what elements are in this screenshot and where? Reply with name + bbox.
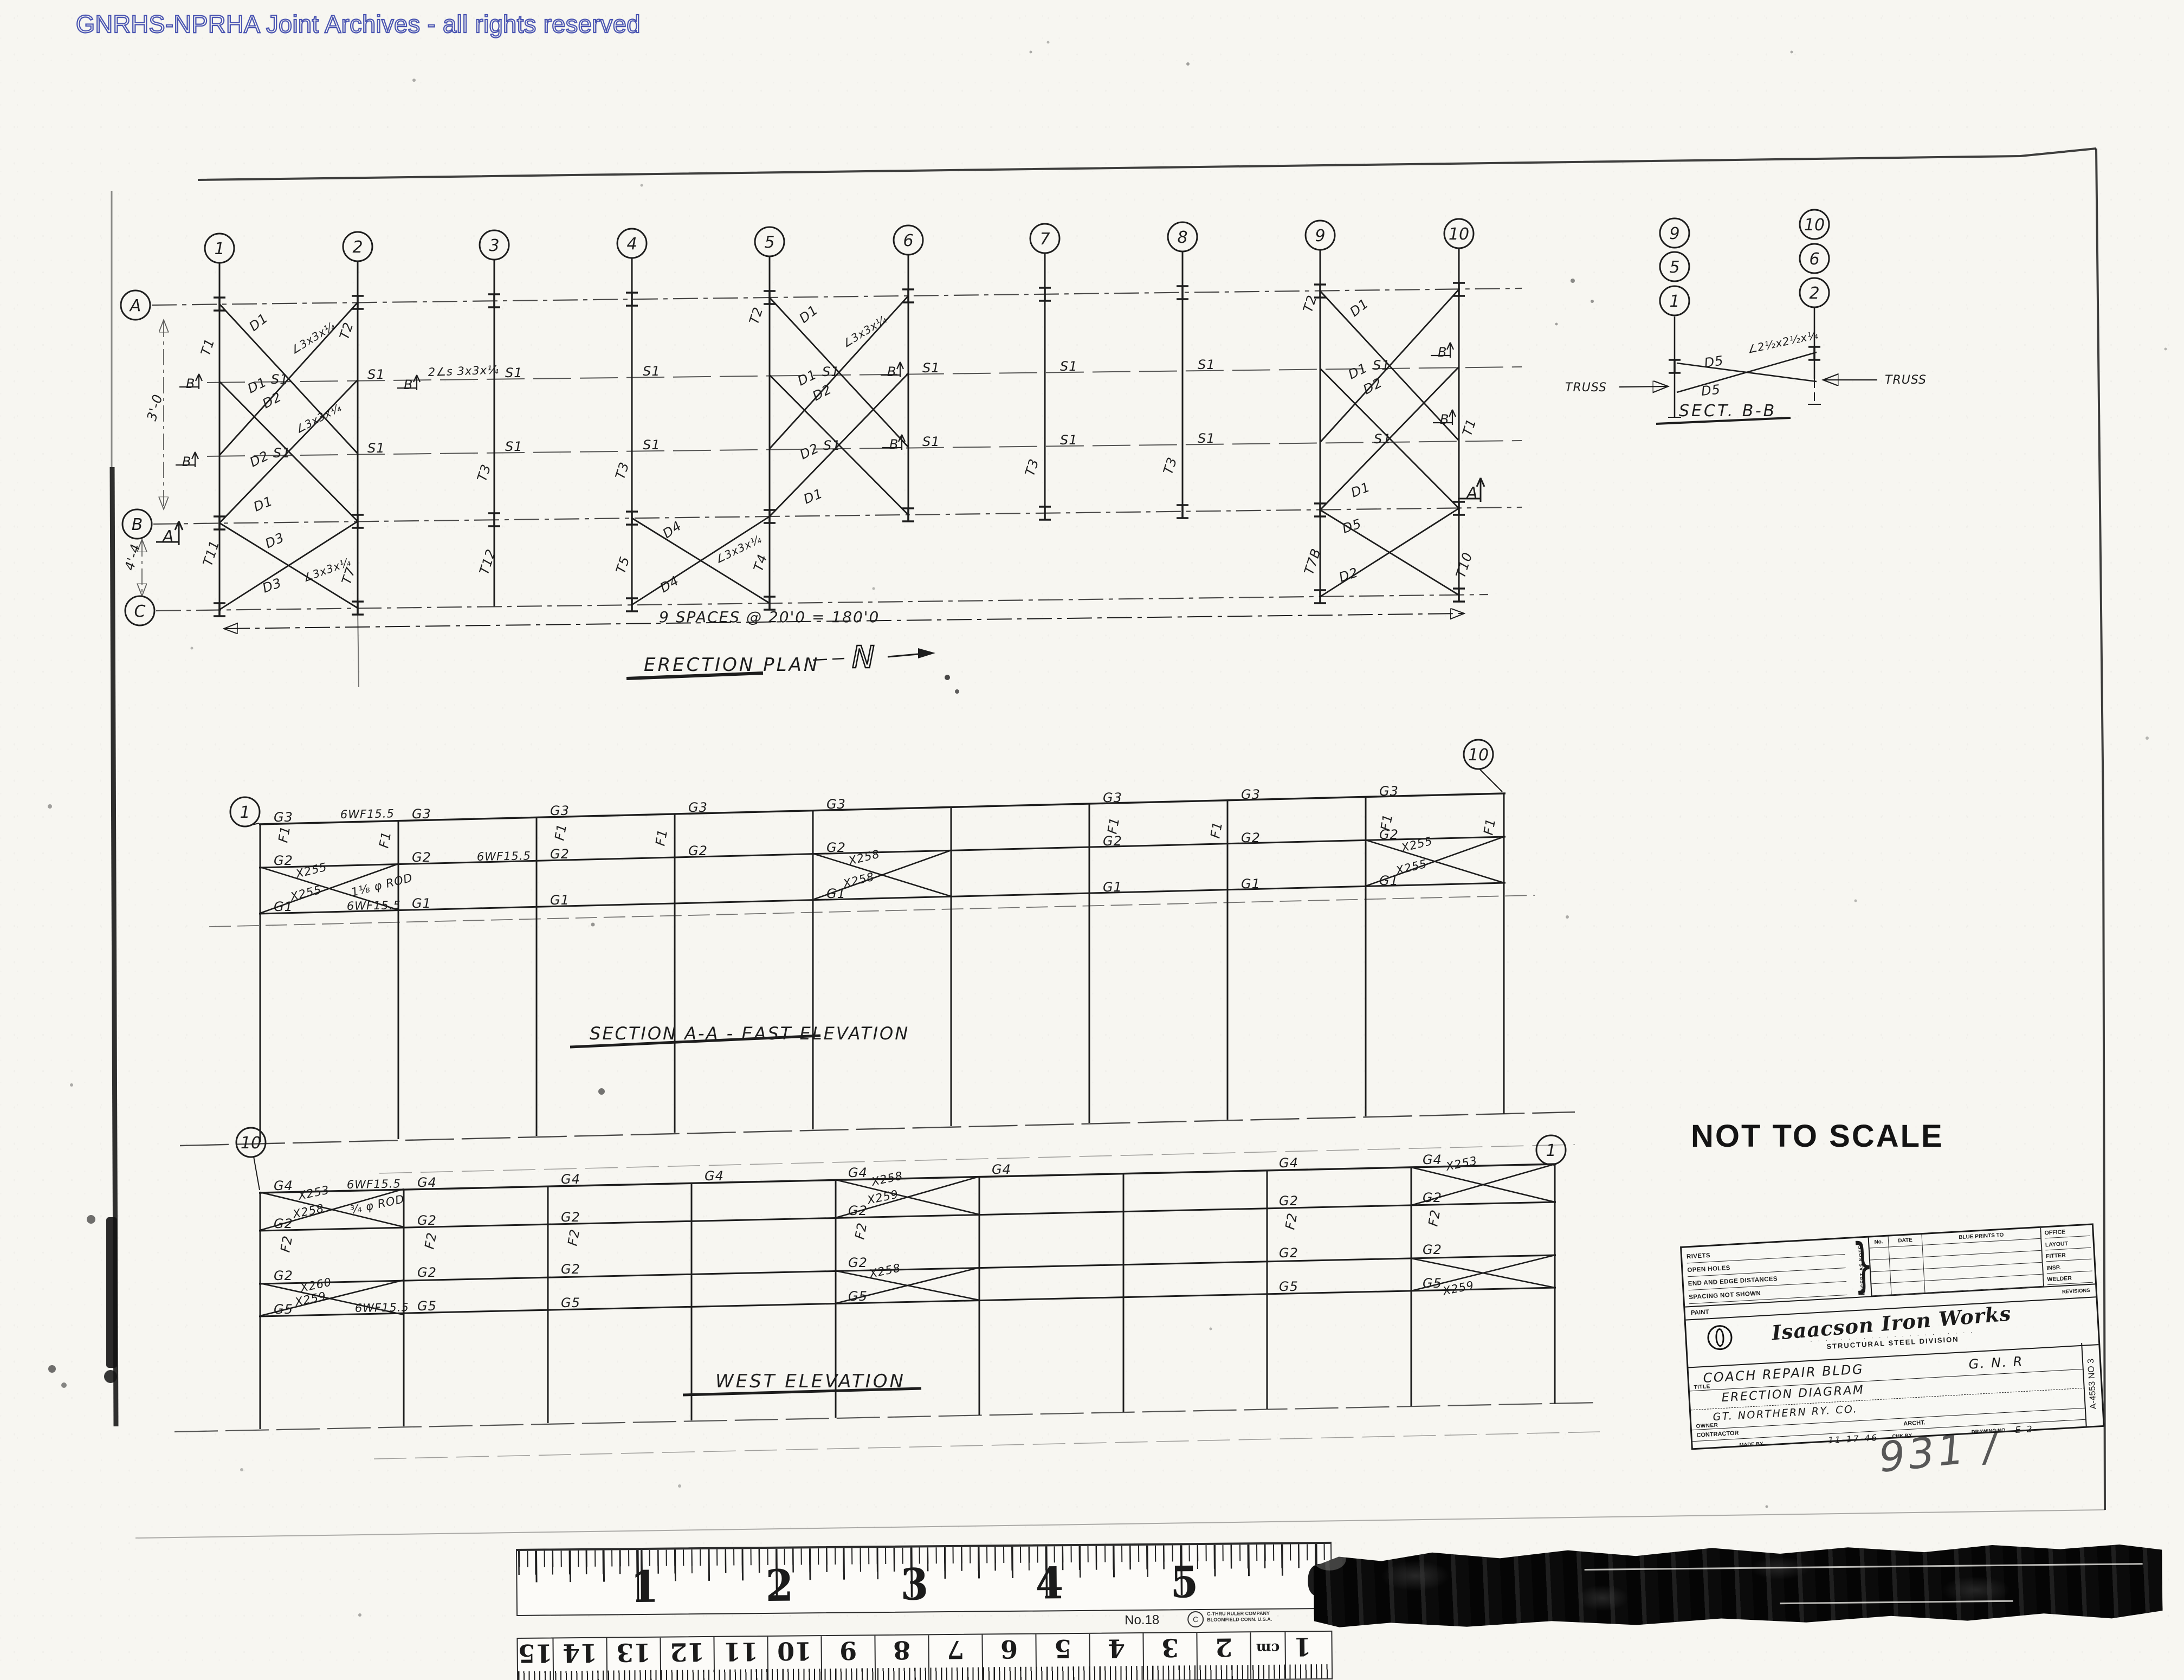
member-label: G2 [412, 850, 431, 865]
member-label: T3 [1160, 455, 1180, 476]
member-label: G4 [1423, 1152, 1442, 1167]
grid-bubble-label: 10 [1449, 225, 1469, 244]
member-label: F1 [1207, 820, 1225, 839]
grid-bubble-label: 2 [1809, 284, 1819, 303]
signoff-welder: WELDER [2047, 1273, 2093, 1285]
member-label: G2 [1423, 1190, 1442, 1205]
ruler-cm-number: 1 [1285, 1632, 1319, 1662]
made-by-label: MADE BY [1739, 1441, 1763, 1448]
ruler-cm-cell: 2 [1197, 1632, 1251, 1679]
col-no-header: No. [1869, 1237, 1889, 1249]
member-label: F2 [1425, 1209, 1443, 1227]
member-label: D5 [1703, 353, 1724, 371]
erection-plan-title: ERECTION PLAN [644, 654, 819, 676]
signoff-column: OFFICE LAYOUT FITTER INSP. WELDER [2040, 1225, 2095, 1287]
member-label: D5 [1701, 382, 1721, 399]
member-label: G5 [274, 1302, 293, 1317]
ruler-cm-number: 7 [929, 1635, 981, 1665]
member-label: S1 [1198, 357, 1216, 372]
member-label: T2 [1300, 293, 1320, 314]
member-label: G2 [848, 1203, 868, 1218]
member-label: T2 [746, 305, 766, 326]
member-label: G2 [1241, 830, 1261, 845]
member-label: X258 [870, 1169, 904, 1188]
member-label: G1 [826, 886, 846, 901]
grid-bubble-label: 1 [1669, 292, 1679, 311]
scanned-drawing-page: GNRHS-NPRHA Joint Archives - all rights … [0, 0, 2184, 1680]
member-label: G4 [274, 1178, 293, 1193]
member-label: B [889, 437, 899, 452]
member-label: F1 [376, 830, 394, 849]
copyright-icon: C [1187, 1611, 1204, 1627]
member-label: G2 [1279, 1245, 1298, 1261]
member-label: 6WF15.5 [355, 1301, 409, 1315]
grid-bubble-label: 10 [241, 1134, 261, 1153]
member-label: T4 [751, 552, 770, 573]
title-label: TITLE [1694, 1384, 1710, 1391]
member-label: G2 [274, 853, 293, 868]
member-label: B [182, 454, 191, 469]
member-label: X258 [847, 847, 881, 868]
member-label: G3 [826, 797, 846, 812]
member-label: G5 [1423, 1276, 1442, 1291]
grid-bubbles: 12345678910ABC1101019511062 [121, 210, 1829, 1165]
grid-bubble-label: 10 [1804, 216, 1825, 235]
member-label: G3 [1379, 784, 1399, 799]
member-label: D1 [1346, 360, 1369, 383]
member-label: S1 [922, 360, 940, 376]
smudge-streak [1585, 1563, 2143, 1571]
member-label: X253 [296, 1183, 331, 1203]
member-label: F2 [852, 1222, 870, 1240]
member-label: A [161, 527, 175, 546]
member-label: G4 [561, 1172, 580, 1187]
ruler-cm-number: 2 [1197, 1632, 1250, 1662]
section-aa-title: SECTION A-A - EAST ELEVATION [590, 1023, 909, 1044]
member-label: S1 [271, 372, 289, 387]
member-label: TRUSS [1885, 373, 1927, 387]
member-label: G2 [1103, 833, 1122, 849]
ruler-cm-cell: 11 [714, 1637, 768, 1680]
sect-bb-lines: SECT. B-B [1619, 308, 1877, 424]
revisions-label: REVISIONS [2062, 1285, 2090, 1298]
ink-blotch [106, 1217, 117, 1368]
member-label: S1 [1373, 358, 1391, 373]
table-cell [1871, 1283, 1891, 1296]
member-label: X258 [841, 870, 876, 890]
ruler-cm-cell: 8 [875, 1635, 929, 1680]
ruler-cm-cell: 14 [553, 1638, 608, 1680]
member-label: D1 [802, 486, 825, 507]
ruler-model-number: No.18 [1125, 1613, 1159, 1629]
member-label: S1 [505, 365, 523, 380]
member-label: D4 [657, 573, 682, 596]
ruler-cm-number: cm [1251, 1640, 1285, 1657]
member-label: B [1440, 412, 1449, 427]
member-label: G3 [412, 806, 431, 822]
grid-bubble-label: 8 [1177, 228, 1187, 247]
member-label: B [1438, 345, 1447, 360]
member-label: 3'-0 [144, 392, 166, 422]
member-label: D1 [1347, 296, 1371, 320]
ruler-brand-line1: C-THRU RULER COMPANY [1207, 1611, 1270, 1617]
member-label: S1 [1198, 431, 1216, 446]
grid-bubble-label: 10 [1468, 746, 1489, 765]
ruler-inch-scale: 123456 [516, 1542, 1332, 1616]
paint-label: PAINT [1690, 1306, 1709, 1319]
member-label: G3 [550, 803, 570, 818]
contractor-label: CONTRACTOR [1696, 1430, 1739, 1438]
not-to-scale-stamp: NOT TO SCALE [1691, 1119, 1944, 1154]
member-label: G5 [561, 1295, 580, 1310]
ruler-inch-number: 5 [1170, 1558, 1194, 1608]
member-label: G5 [1279, 1279, 1298, 1294]
member-label: 4'-4 [122, 542, 144, 572]
member-label: G2 [848, 1255, 868, 1270]
member-label: D2 [1337, 565, 1360, 585]
ruler-cm-cell: 4 [1090, 1633, 1144, 1680]
architect-label: ARCHT. [1903, 1419, 1925, 1427]
ruler-inch-number: 4 [1035, 1559, 1059, 1609]
ruler-cm-cell: 12 [661, 1637, 715, 1680]
member-label: S1 [367, 367, 385, 382]
grid-bubble-label: 5 [1669, 258, 1679, 277]
member-label: D2 [797, 441, 821, 463]
member-label: G1 [1103, 880, 1122, 895]
smudge-streak [1780, 1600, 2013, 1605]
member-label: S1 [822, 364, 840, 379]
ruler-cm-cell: 1 [1285, 1632, 1320, 1679]
member-label: T5 [613, 554, 632, 576]
member-label: F2 [422, 1231, 440, 1250]
member-label: D1 [246, 311, 270, 334]
ruler-cm-number: 10 [768, 1636, 820, 1666]
member-label: 2∠s 3x3x¼ [428, 363, 499, 379]
ruler-cm-cell: 3 [1143, 1633, 1198, 1680]
member-label: 6WF15.5 [347, 1177, 401, 1191]
member-label: X255 [294, 860, 328, 881]
north-letter: N [852, 640, 875, 675]
member-label: S1 [823, 438, 841, 453]
member-label: G1 [412, 896, 431, 911]
member-label: D2 [260, 389, 285, 412]
blueprints-table: No. DATE BLUE PRINTS TO [1868, 1228, 2044, 1296]
member-label: G2 [1423, 1242, 1442, 1257]
member-label: X253 [1444, 1154, 1478, 1173]
member-label: T1 [198, 337, 217, 358]
member-label: G1 [274, 899, 293, 914]
notes-brace: } EXCEPT AS NOTED [1846, 1238, 1871, 1297]
member-label: G4 [1279, 1155, 1298, 1171]
member-label: T3 [1022, 457, 1042, 478]
ibeam-marks [214, 283, 1820, 616]
member-label: D3 [260, 575, 283, 596]
member-label: X255 [288, 883, 323, 903]
grid-bubble-label: 4 [626, 235, 637, 254]
spaces-dimension-note: 9 SPACES @ 20'0 = 180'0 [659, 608, 880, 626]
member-label: G3 [1103, 790, 1122, 805]
drawing-no-label: DRAWING NO [1972, 1427, 2006, 1435]
member-label: 1⅛ φ ROD [350, 871, 414, 899]
member-label: X255 [1394, 857, 1429, 877]
member-label: S1 [505, 439, 523, 454]
member-label: B [186, 376, 195, 391]
job-number: A-4553 NO 3 [2086, 1359, 2099, 1410]
grid-bubble-label: 9 [1315, 227, 1325, 245]
member-label: F1 [275, 825, 293, 844]
sect-bb-title: SECT. B-B [1679, 402, 1776, 421]
signoff-fitter: FITTER [2046, 1250, 2092, 1262]
ruler-cm-number: 8 [875, 1635, 928, 1665]
check-date: 11-17-46 [1828, 1432, 1879, 1445]
ruler-cm-number: 5 [1036, 1634, 1089, 1664]
table-cell [1871, 1271, 1891, 1284]
member-label: F2 [277, 1235, 295, 1253]
member-label: T3 [474, 462, 494, 483]
member-label: S1 [1374, 431, 1392, 447]
grid-bubble-label: 6 [903, 231, 913, 250]
member-label: G4 [417, 1175, 437, 1190]
signoff-office: OFFICE [2044, 1226, 2090, 1239]
member-label: T3 [612, 460, 632, 481]
member-label: 6WF15.5 [477, 849, 531, 863]
member-label: G2 [550, 847, 570, 862]
member-label: D3 [263, 529, 287, 551]
member-label: 6WF15.5 [347, 899, 401, 913]
grid-bubble-label: 1 [240, 803, 250, 822]
table-cell [1870, 1247, 1890, 1260]
ruler-cm-cell: 15 [518, 1638, 554, 1680]
member-label: D1 [245, 374, 269, 397]
member-label: D5 [1340, 516, 1364, 537]
grid-bubble-label: C [134, 602, 146, 621]
table-cell [1891, 1281, 1925, 1295]
member-label: D1 [795, 367, 819, 389]
member-label: G3 [274, 810, 293, 825]
ibeam-mark [1808, 347, 1820, 360]
ruler-cm-scale: 15141312111098765432cm1 [516, 1631, 1333, 1680]
ruler-cm-number: 12 [661, 1637, 713, 1667]
ruler-cm-cell: 6 [983, 1634, 1037, 1680]
member-label: ∠2½x2½x¼ [1746, 328, 1819, 356]
member-label: T12 [476, 547, 499, 576]
grid-bubble-label: 7 [1039, 230, 1050, 249]
archive-watermark: GNRHS-NPRHA Joint Archives - all rights … [76, 10, 641, 38]
ruler-cm-number: 14 [553, 1638, 606, 1668]
railroad-abbrev: G. N. R [1968, 1351, 2024, 1375]
member-label: A [1465, 484, 1478, 503]
grid-bubble-label: 2 [352, 238, 363, 257]
ruler-cm-cell: 5 [1036, 1634, 1090, 1680]
ruler-cm-number: 3 [1143, 1633, 1196, 1663]
notes-left-column: RIVETS OPEN HOLES END AND EDGE DISTANCES… [1682, 1239, 1850, 1307]
member-label: G2 [417, 1265, 437, 1280]
title-block: RIVETS OPEN HOLES END AND EDGE DISTANCES… [1680, 1223, 2105, 1450]
member-label: D1 [796, 302, 820, 326]
member-label: F1 [1481, 817, 1498, 836]
table-cell [1870, 1259, 1890, 1272]
ruler-cm-number: 13 [607, 1638, 660, 1668]
east-elevation-lines: SECTION A-A - EAST ELEVATION [180, 768, 1575, 1173]
member-label: S1 [922, 434, 940, 449]
ibeam-mark [1669, 360, 1681, 373]
signoff-insp: INSP. [2046, 1261, 2092, 1274]
grid-bubble-label: 3 [489, 236, 499, 255]
member-label: TRUSS [1565, 381, 1607, 395]
member-label: G4 [992, 1162, 1011, 1177]
member-label: G5 [417, 1298, 437, 1314]
grid-bubble-label: B [132, 515, 143, 534]
member-label: F1 [552, 823, 570, 842]
ruler-brand-line2: BLOOMFIELD CONN. U.S.A. [1207, 1617, 1272, 1623]
member-label: G1 [1379, 873, 1399, 888]
member-label: G1 [550, 893, 570, 908]
member-label: D2 [247, 448, 271, 470]
member-label: F1 [652, 828, 670, 847]
grid-bubble-label: 1 [1546, 1141, 1556, 1160]
member-label: G4 [848, 1165, 868, 1180]
member-label: G2 [688, 843, 708, 858]
member-label: D1 [1349, 479, 1373, 500]
member-label: G5 [848, 1289, 868, 1304]
member-label: S1 [1060, 432, 1078, 448]
member-label: G2 [826, 840, 846, 855]
ruler-cm-cell: 13 [607, 1638, 661, 1680]
ruler-cm-number: 11 [714, 1637, 767, 1666]
owner-label: OWNER [1696, 1423, 1718, 1430]
ruler-inch-number: 1 [630, 1562, 655, 1612]
member-label: X258 [291, 1201, 325, 1221]
member-label: S1 [643, 364, 661, 379]
ruler-inch-number: 3 [900, 1560, 925, 1610]
grid-bubble-label: 9 [1669, 224, 1679, 243]
member-label: S1 [1060, 359, 1078, 374]
member-label: B [887, 364, 896, 379]
member-label: T1 [1459, 417, 1479, 438]
member-label: G2 [561, 1262, 580, 1277]
grid-bubble-label: 6 [1809, 250, 1819, 269]
member-label: G2 [274, 1268, 293, 1283]
reference-ruler: 123456 No.18 C C-THRU RULER COMPANY BLOO… [516, 1542, 1333, 1680]
member-label: D1 [251, 493, 275, 514]
member-label: F2 [1282, 1212, 1300, 1231]
member-label: G1 [1241, 876, 1261, 891]
member-label: F1 [1378, 813, 1395, 832]
member-label: G3 [688, 800, 708, 815]
grid-bubble-label: 1 [214, 240, 224, 259]
north-arrow-head [918, 648, 935, 658]
ruler-inch-number: 2 [765, 1561, 790, 1611]
member-label: G2 [561, 1210, 580, 1225]
member-label: B [404, 377, 413, 392]
member-label: T10 [1453, 550, 1476, 579]
ruler-cm-cell: cm [1251, 1632, 1286, 1679]
ruler-cm-number: 9 [822, 1636, 874, 1665]
ruler-cm-number: 6 [983, 1634, 1035, 1664]
plan-titles: 9 SPACES @ 20'0 = 180'0 ERECTION PLAN N [626, 608, 935, 679]
ruler-cm-number: 15 [518, 1638, 552, 1668]
member-label: G2 [274, 1216, 293, 1231]
ruler-cm-cell: 9 [822, 1636, 876, 1680]
ruler-cm-cell: 10 [768, 1636, 822, 1680]
member-label: G4 [705, 1168, 724, 1184]
signoff-layout: LAYOUT [2045, 1238, 2091, 1250]
ruler-cm-number: 4 [1090, 1633, 1142, 1663]
grid-bubble-label: 5 [764, 233, 774, 252]
member-label: G2 [417, 1213, 437, 1228]
ruler-cm-cell: 7 [929, 1634, 983, 1680]
member-label: X258 [868, 1261, 902, 1281]
drawing-number: E-2 [2015, 1424, 2034, 1435]
member-label: G2 [1279, 1193, 1298, 1209]
ruler-brand: C-THRU RULER COMPANY BLOOMFIELD CONN. U.… [1207, 1611, 1272, 1623]
member-label: 6WF15.5 [340, 807, 395, 821]
member-label: S1 [643, 437, 661, 453]
member-label: X255 [1399, 834, 1434, 855]
grid-bubble-label: A [129, 296, 141, 315]
member-label: F1 [1104, 816, 1122, 835]
member-label: S1 [273, 445, 291, 461]
member-label: G3 [1241, 787, 1261, 802]
chk-by-label: CHK BY [1892, 1432, 1912, 1439]
member-label: F2 [565, 1228, 583, 1247]
member-label: S1 [367, 441, 385, 456]
